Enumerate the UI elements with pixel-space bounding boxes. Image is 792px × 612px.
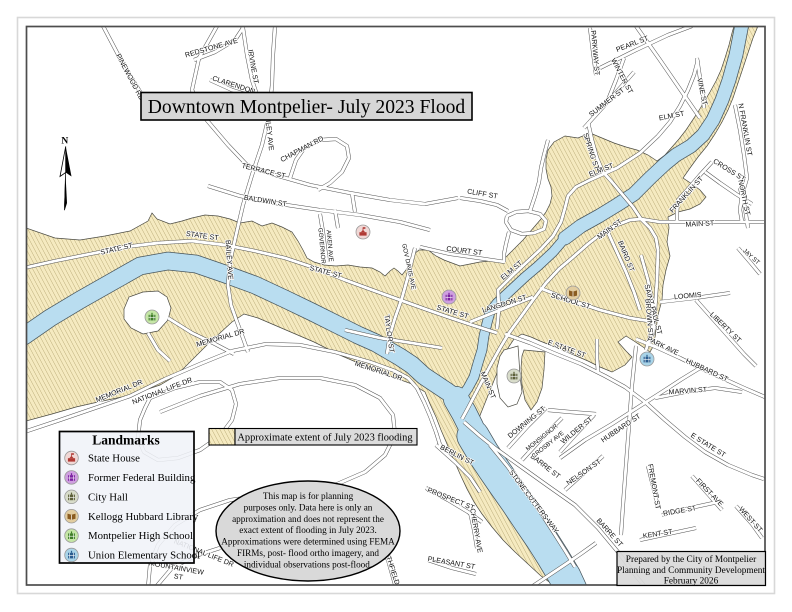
svg-text:FIRMs, post- flood ortho image: FIRMs, post- flood ortho imagery, and: [237, 548, 379, 558]
svg-text:This map is for planning: This map is for planning: [263, 491, 354, 501]
svg-text:Planning and Community Develop: Planning and Community Development: [617, 566, 765, 576]
svg-text:City Hall: City Hall: [88, 491, 128, 503]
svg-text:Downtown Montpelier- July 2023: Downtown Montpelier- July 2023 Flood: [148, 97, 466, 118]
svg-text:Union Elementary School: Union Elementary School: [88, 550, 200, 562]
svg-text:Prepared by the City of Montpe: Prepared by the City of Montpelier: [626, 554, 757, 565]
svg-text:individual observations post-f: individual observations post-flood.: [244, 559, 372, 569]
svg-text:Approximations were determined: Approximations were determined using FEM…: [221, 537, 395, 547]
svg-text:Kellogg Hubbard Library: Kellogg Hubbard Library: [88, 511, 199, 523]
svg-text:State House: State House: [88, 453, 140, 465]
svg-text:N: N: [61, 137, 68, 147]
svg-text:approximation and does not rep: approximation and does not represent the: [232, 514, 384, 524]
svg-text:Approximate extent of July 202: Approximate extent of July 2023 flooding: [237, 433, 412, 444]
svg-text:Landmarks: Landmarks: [92, 433, 160, 448]
svg-text:purposes only. Data here is on: purposes only. Data here is only an: [244, 502, 373, 512]
svg-text:Montpelier High School: Montpelier High School: [88, 530, 193, 542]
svg-text:Former Federal Building: Former Federal Building: [88, 472, 196, 484]
svg-text:MAIN ST: MAIN ST: [685, 219, 715, 229]
svg-text:exact extent of flooding in Ju: exact extent of flooding in July 2023.: [239, 525, 377, 535]
svg-text:February 2026: February 2026: [664, 577, 719, 587]
